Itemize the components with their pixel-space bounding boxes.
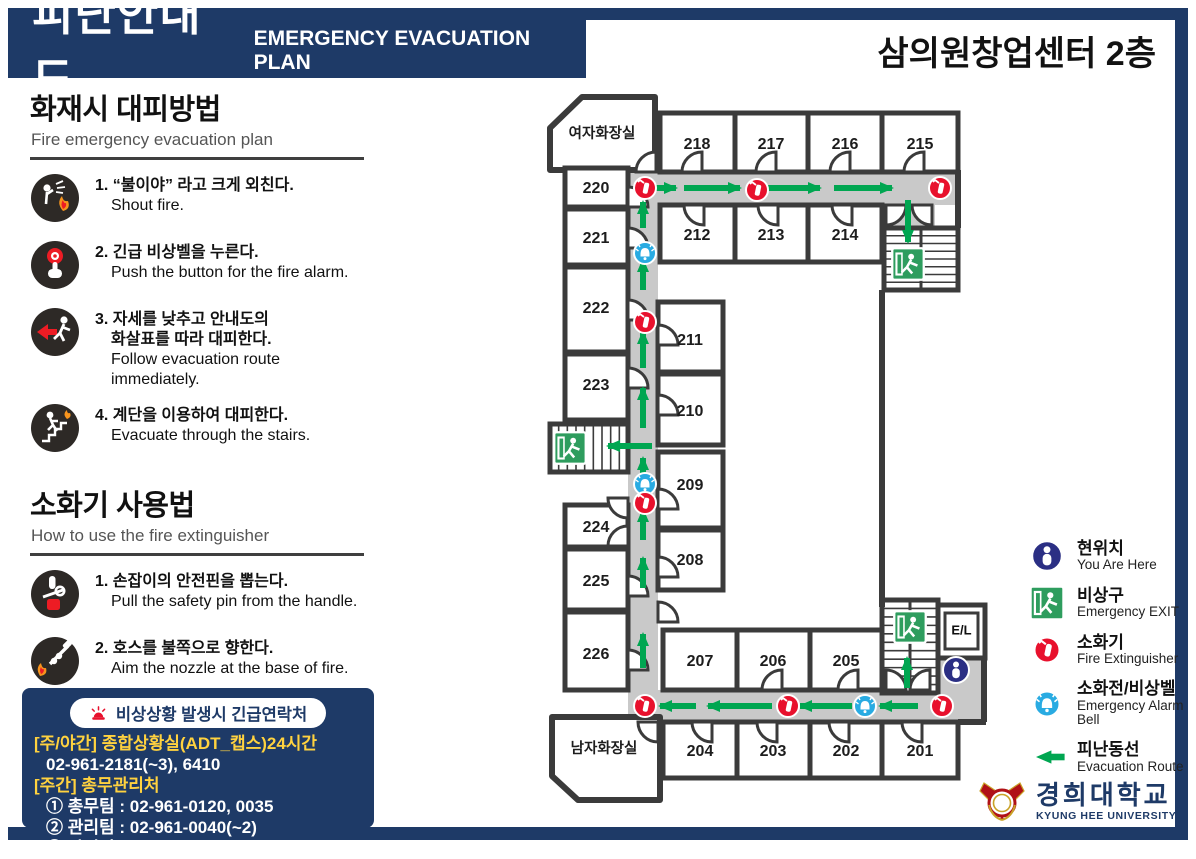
bell-icon bbox=[634, 242, 656, 264]
contact-line: [주/야간] 종합상황실(ADT_캡스)24시간 bbox=[22, 733, 374, 754]
border-top bbox=[586, 8, 1188, 20]
contact-line: [주간] 총무관리처 bbox=[22, 775, 374, 796]
step-text: 1. 손잡이의 안전핀을 뽑는다.Pull the safety pin fro… bbox=[95, 569, 357, 612]
room-label: 212 bbox=[684, 227, 711, 244]
floor-plan: E/L여자화장실22022122222322422522621821721621… bbox=[540, 85, 1000, 810]
room-label: 215 bbox=[907, 136, 934, 153]
room-label: 224 bbox=[583, 519, 610, 536]
legend-item-ext: 소화기Fire Extinguisher bbox=[1028, 632, 1188, 668]
legend-text: 소화전/비상벨Emergency Alarm Bell bbox=[1077, 679, 1188, 728]
legend-here-icon bbox=[1028, 538, 1066, 574]
legend-item-route: 피난동선Evacuation Route bbox=[1028, 739, 1188, 775]
siren-icon bbox=[89, 704, 108, 723]
room-label: 218 bbox=[684, 136, 711, 153]
instructions-sidebar: 화재시 대피방법Fire emergency evacuation plan1.… bbox=[30, 86, 364, 778]
ext-icon bbox=[634, 492, 656, 514]
legend-text: 피난동선Evacuation Route bbox=[1077, 740, 1184, 774]
room-label: 223 bbox=[583, 377, 610, 394]
ext-icon bbox=[634, 311, 656, 333]
university-crest-icon bbox=[976, 779, 1028, 825]
ext-icon bbox=[777, 695, 799, 717]
room-label: 210 bbox=[677, 403, 704, 420]
room-label: 204 bbox=[687, 743, 714, 760]
section-divider bbox=[30, 553, 364, 556]
bell-icon bbox=[1034, 691, 1059, 716]
room-label: 216 bbox=[832, 136, 859, 153]
room-label: 208 bbox=[677, 552, 704, 569]
contact-line: ② 관리팀 : 02-961-0040(~2) bbox=[22, 817, 374, 838]
step-text: 2. 긴급 비상벨을 누른다.Push the button for the f… bbox=[95, 240, 348, 283]
instruction-step: 2. 긴급 비상벨을 누른다.Push the button for the f… bbox=[30, 240, 364, 295]
room-label: 206 bbox=[760, 653, 787, 670]
ext-icon bbox=[634, 695, 656, 717]
section-subtitle: How to use the fire extinguisher bbox=[31, 526, 364, 546]
instruction-step: 1. 손잡이의 안전핀을 뽑는다.Pull the safety pin fro… bbox=[30, 569, 364, 624]
step-text: 3. 자세를 낮추고 안내도의화살표를 따라 대피한다.Follow evacu… bbox=[95, 307, 364, 391]
contact-line: ① 총무팀 : 02-961-0120, 0035 bbox=[22, 796, 374, 817]
section-divider bbox=[30, 157, 364, 160]
bell-icon bbox=[854, 695, 876, 717]
legend-bell-icon bbox=[1028, 686, 1066, 722]
aim-nozzle-icon bbox=[30, 636, 80, 691]
room-label: 205 bbox=[833, 653, 860, 670]
shout-fire-icon bbox=[30, 173, 80, 228]
room-label: 221 bbox=[583, 230, 610, 247]
exit-icon bbox=[1031, 587, 1064, 620]
elevator: E/L bbox=[938, 605, 985, 658]
door-swing bbox=[658, 602, 678, 622]
ext-icon bbox=[634, 177, 656, 199]
legend-text: 비상구Emergency EXIT bbox=[1077, 586, 1179, 620]
university-logo: 경희대학교 KYUNG HEE UNIVERSITY bbox=[976, 779, 1176, 825]
use-stairs-icon bbox=[30, 403, 80, 458]
legend-route-icon bbox=[1028, 739, 1066, 775]
elevator-label: E/L bbox=[951, 623, 971, 638]
building-title: 삼의원창업센터 2층 bbox=[877, 26, 1156, 75]
ext-icon bbox=[931, 695, 953, 717]
legend-text: 소화기Fire Extinguisher bbox=[1077, 633, 1178, 667]
contact-title-pill: 비상상황 발생시 긴급연락처 bbox=[70, 698, 326, 728]
instruction-step: 1. “불이야” 라고 크게 외친다.Shout fire. bbox=[30, 173, 364, 228]
map-legend: 현위치You Are Here비상구Emergency EXIT소화기Fire … bbox=[1028, 538, 1188, 786]
room-label: 남자화장실 bbox=[571, 739, 638, 757]
instruction-step: 3. 자세를 낮추고 안내도의화살표를 따라 대피한다.Follow evacu… bbox=[30, 307, 364, 391]
section-title: 화재시 대피방법 bbox=[30, 86, 364, 128]
follow-route-icon bbox=[30, 307, 80, 362]
instruction-step: 2. 호스를 불쪽으로 향한다.Aim the nozzle at the ba… bbox=[30, 636, 364, 691]
room-label: 201 bbox=[907, 743, 934, 760]
section-title: 소화기 사용법 bbox=[30, 482, 364, 524]
university-name-en: KYUNG HEE UNIVERSITY bbox=[1036, 811, 1176, 822]
page-title-en: EMERGENCY EVACUATION PLAN bbox=[254, 27, 586, 75]
step-text: 1. “불이야” 라고 크게 외친다.Shout fire. bbox=[95, 173, 294, 216]
instruction-step: 4. 계단을 이용하여 대피한다.Evacuate through the st… bbox=[30, 403, 364, 458]
exit-icon bbox=[894, 611, 926, 643]
room-label: 207 bbox=[687, 653, 714, 670]
step-text: 2. 호스를 불쪽으로 향한다.Aim the nozzle at the ba… bbox=[95, 636, 348, 679]
contact-lines: [주/야간] 종합상황실(ADT_캡스)24시간02-961-2181(~3),… bbox=[22, 733, 374, 859]
legend-item-exit: 비상구Emergency EXIT bbox=[1028, 585, 1188, 621]
room-label: 여자화장실 bbox=[569, 124, 636, 142]
ext-icon bbox=[1034, 637, 1059, 662]
ext-icon bbox=[746, 179, 768, 201]
university-name-ko: 경희대학교 bbox=[1036, 782, 1176, 808]
contact-line: ③ 안전팀 : 02-961-0119 bbox=[22, 838, 374, 859]
exit-icon bbox=[554, 432, 586, 464]
step-text: 4. 계단을 이용하여 대피한다.Evacuate through the st… bbox=[95, 403, 310, 446]
section-subtitle: Fire emergency evacuation plan bbox=[31, 130, 364, 150]
room-label: 209 bbox=[677, 477, 704, 494]
room-label: 226 bbox=[583, 646, 610, 663]
header-band: 피난안내도 EMERGENCY EVACUATION PLAN bbox=[8, 8, 586, 78]
legend-item-here: 현위치You Are Here bbox=[1028, 538, 1188, 574]
contact-title: 비상상황 발생시 긴급연락처 bbox=[116, 701, 307, 725]
legend-exit-icon bbox=[1028, 585, 1066, 621]
room-label: 222 bbox=[583, 300, 610, 317]
here-icon bbox=[943, 657, 969, 683]
room-label: 217 bbox=[758, 136, 785, 153]
legend-item-bell: 소화전/비상벨Emergency Alarm Bell bbox=[1028, 679, 1188, 728]
emergency-contact-box: 비상상황 발생시 긴급연락처 [주/야간] 종합상황실(ADT_캡스)24시간0… bbox=[22, 688, 374, 828]
exit-icon bbox=[892, 248, 924, 280]
route-icon bbox=[1036, 751, 1065, 764]
contact-line: 02-961-2181(~3), 6410 bbox=[22, 754, 374, 775]
room-label: 220 bbox=[583, 180, 610, 197]
room-label: 211 bbox=[677, 332, 703, 349]
room-label: 203 bbox=[760, 743, 787, 760]
here-icon bbox=[1032, 541, 1062, 571]
room-label: 214 bbox=[832, 227, 859, 244]
legend-text: 현위치You Are Here bbox=[1077, 539, 1157, 573]
room-label: 213 bbox=[758, 227, 785, 244]
legend-ext-icon bbox=[1028, 632, 1066, 668]
room-label: 225 bbox=[583, 573, 610, 590]
ext-icon bbox=[929, 177, 951, 199]
press-alarm-icon bbox=[30, 240, 80, 295]
room-label: 202 bbox=[833, 743, 860, 760]
section-fire-evacuation: 화재시 대피방법Fire emergency evacuation plan1.… bbox=[30, 86, 364, 458]
pull-pin-icon bbox=[30, 569, 80, 624]
